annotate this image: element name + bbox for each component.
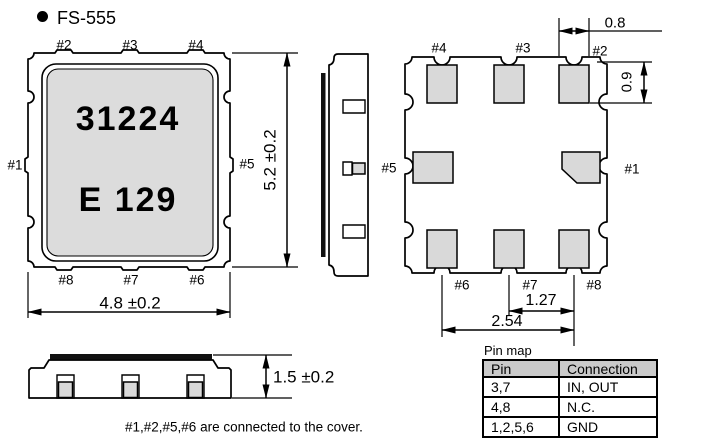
table-row: 4,8 N.C. [483, 397, 657, 417]
table-row: 1,2,5,6 GND [483, 417, 657, 437]
side-pad [343, 225, 365, 238]
top-view-pin-label-2: #2 [56, 38, 71, 52]
pad-6 [427, 230, 457, 268]
page-title: FS-555 [57, 9, 116, 27]
top-view-pin-label-4: #4 [188, 38, 203, 52]
bottom-view-pin-label-6: #6 [454, 278, 469, 292]
metal-cover [47, 69, 213, 256]
bullet-icon [37, 11, 48, 22]
front-pad-gray [124, 382, 138, 398]
dim-pad-height-label: 0.9 [620, 72, 635, 93]
marking-text-line2: E 129 [79, 183, 178, 217]
pin-map-header-pin: Pin [483, 360, 559, 377]
bottom-view-pin-label-2: #2 [592, 44, 607, 58]
connection-cell: IN, OUT [559, 377, 657, 397]
pin-map-caption: Pin map [484, 343, 532, 358]
top-view-pin-label-8: #8 [58, 273, 73, 287]
dim-height-label: 5.2 ±0.2 [262, 129, 279, 190]
pin-map-header-connection: Connection [559, 360, 657, 377]
top-view-pin-label-5: #5 [239, 157, 254, 171]
side-pad [343, 162, 352, 175]
pin-map-table: Pin Connection 3,7 IN, OUT 4,8 N.C. 1,2,… [482, 359, 658, 438]
connection-cell: GND [559, 417, 657, 437]
top-view-pin-label-3: #3 [122, 38, 137, 52]
top-view-pin-label-1: #1 [7, 158, 22, 172]
bottom-view-pin-label-4: #4 [431, 41, 446, 55]
pad-3 [494, 65, 524, 103]
pin-map-header-row: Pin Connection [483, 360, 657, 377]
datasheet-page: FS-555 #2 #3 #4 #1 #5 #8 #7 #6 31224 E 1… [0, 0, 706, 447]
dim-thickness-label: 1.5 ±0.2 [273, 369, 334, 386]
front-view-drawing [29, 354, 292, 398]
dim-pad-width-label: 0.8 [605, 16, 626, 31]
pad-2 [559, 65, 589, 103]
bottom-view-pin-label-8: #8 [586, 278, 601, 292]
pin-cell: 3,7 [483, 377, 559, 397]
dim-pitch-inner-label: 1.27 [525, 293, 556, 309]
top-view-pin-label-6: #6 [189, 273, 204, 287]
pad-7 [494, 230, 524, 268]
dim-width-label: 4.8 ±0.2 [99, 295, 160, 312]
bottom-view-pin-label-3: #3 [515, 41, 530, 55]
marking-text-line1: 31224 [76, 102, 181, 136]
connection-cell: N.C. [559, 397, 657, 417]
pin-cell: 4,8 [483, 397, 559, 417]
note-text: #1,#2,#5,#6 are connected to the cover. [125, 420, 363, 434]
side-view-cover-lid [321, 73, 326, 257]
pad-8 [559, 230, 589, 268]
bottom-view-pin-label-7: #7 [522, 278, 537, 292]
side-pad-5 [353, 163, 366, 174]
top-view-pin-label-7: #7 [123, 273, 138, 287]
front-pad-gray [59, 382, 73, 398]
dim-pitch-outer-label: 2.54 [491, 314, 522, 330]
bottom-view-pin-label-5: #5 [381, 161, 396, 175]
pin-cell: 1,2,5,6 [483, 417, 559, 437]
table-row: 3,7 IN, OUT [483, 377, 657, 397]
bottom-view-pin-label-1: #1 [624, 162, 639, 176]
front-view-cover-lid [50, 354, 212, 360]
pad-5 [413, 152, 453, 183]
pad-4 [427, 65, 457, 103]
side-view-drawing [321, 54, 368, 276]
side-pad [343, 100, 365, 113]
front-pad-gray [189, 382, 203, 398]
